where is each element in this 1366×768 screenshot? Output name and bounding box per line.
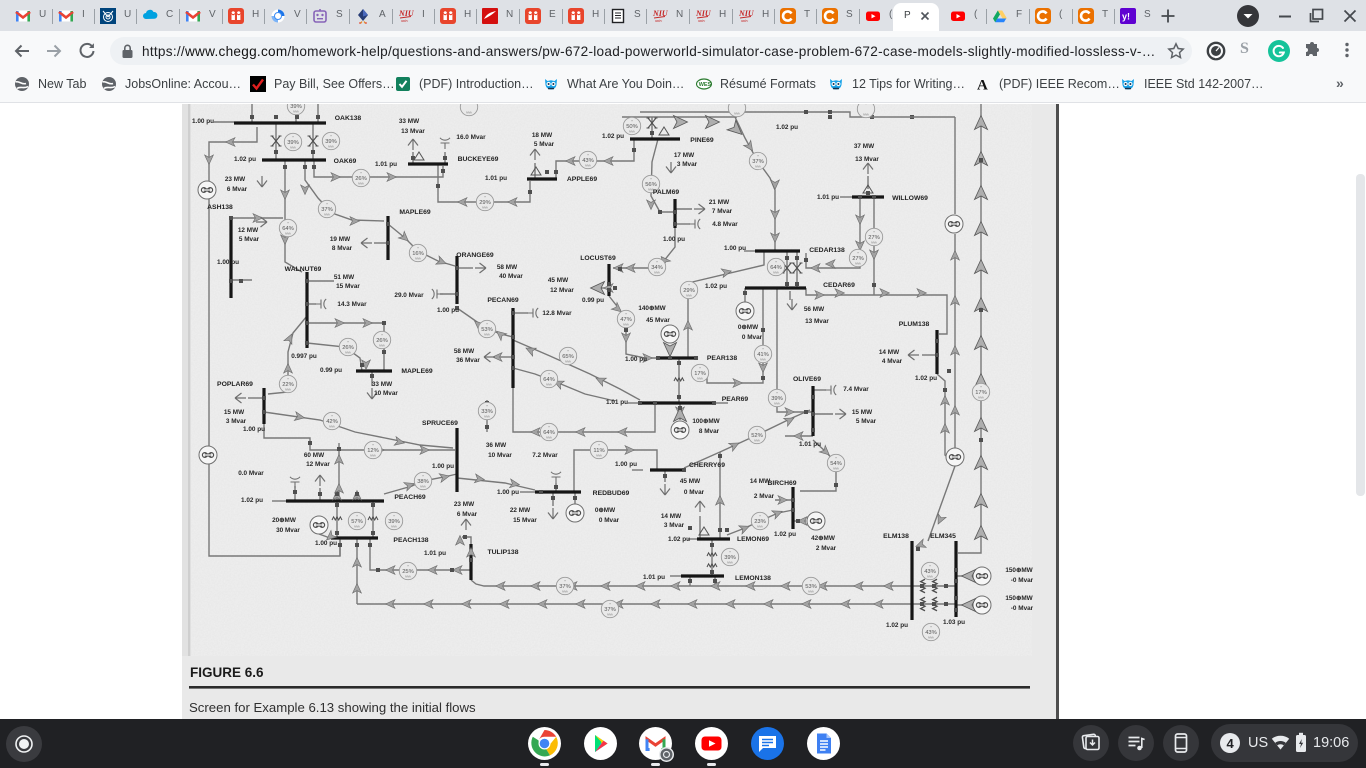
svg-text:MVA: MVA	[808, 589, 814, 593]
svg-text:MVA: MVA	[855, 261, 861, 265]
svg-text:37%: 37%	[604, 607, 616, 613]
svg-text:26%: 26%	[342, 345, 354, 351]
svg-text:univ: univ	[698, 18, 705, 23]
svg-text:39%: 39%	[290, 104, 302, 110]
svg-text:1.02 pu: 1.02 pu	[705, 283, 727, 290]
svg-text:1.02 pu: 1.02 pu	[774, 531, 796, 538]
svg-text:1.00 pu: 1.00 pu	[497, 489, 519, 496]
svg-text:13 Mvar: 13 Mvar	[805, 318, 829, 325]
svg-text:MVA: MVA	[285, 387, 291, 391]
svg-text:MVA: MVA	[928, 635, 934, 639]
svg-text:37%: 37%	[559, 584, 571, 590]
svg-text:1.01 pu: 1.01 pu	[485, 175, 507, 182]
svg-text:1.02 pu: 1.02 pu	[241, 497, 263, 504]
svg-text:MAPLE69: MAPLE69	[401, 368, 433, 375]
svg-text:MVA: MVA	[654, 270, 660, 274]
svg-text:1.02 pu: 1.02 pu	[886, 622, 908, 629]
svg-text:29.0 Mvar: 29.0 Mvar	[394, 292, 424, 299]
svg-text:56 MW: 56 MW	[804, 306, 825, 313]
svg-text:MVA: MVA	[328, 144, 334, 148]
svg-text:23%: 23%	[754, 519, 766, 525]
svg-text:0.0 Mvar: 0.0 Mvar	[238, 470, 264, 477]
svg-text:1.02 pu: 1.02 pu	[234, 156, 256, 163]
svg-text:26%: 26%	[355, 176, 367, 182]
svg-text:PEAR138: PEAR138	[707, 355, 737, 362]
svg-text:PEAR69: PEAR69	[722, 396, 749, 403]
svg-text:y!: y!	[1122, 12, 1130, 22]
svg-text:MVA: MVA	[978, 395, 984, 399]
svg-text:NIU: NIU	[652, 9, 668, 18]
svg-text:2 Mvar: 2 Mvar	[816, 545, 837, 552]
svg-text:15 MW: 15 MW	[224, 409, 245, 416]
svg-text:39%: 39%	[388, 519, 400, 525]
svg-text:45 MW: 45 MW	[680, 478, 701, 485]
svg-text:MVA: MVA	[774, 401, 780, 405]
svg-text:ORANGE69: ORANGE69	[456, 252, 494, 259]
svg-text:8 Mvar: 8 Mvar	[699, 428, 720, 435]
svg-text:33 MW: 33 MW	[372, 381, 393, 388]
svg-text:10 Mvar: 10 Mvar	[488, 452, 512, 459]
svg-text:0 Mvar: 0 Mvar	[599, 517, 620, 524]
svg-text:1.03 pu: 1.03 pu	[943, 619, 965, 626]
svg-text:MAPLE69: MAPLE69	[399, 209, 431, 216]
svg-text:NIU: NIU	[738, 9, 754, 18]
svg-text:MVA: MVA	[290, 145, 296, 149]
svg-text:univ: univ	[741, 18, 748, 23]
svg-text:6 Mvar: 6 Mvar	[457, 511, 478, 518]
svg-text:15 MW: 15 MW	[852, 409, 873, 416]
svg-text:5 Mvar: 5 Mvar	[239, 236, 260, 243]
svg-text:21 MW: 21 MW	[709, 199, 730, 206]
svg-text:64%: 64%	[282, 226, 294, 232]
svg-text:50%: 50%	[626, 124, 638, 130]
svg-text:16.0 Mvar: 16.0 Mvar	[456, 134, 486, 141]
svg-text:4 Mvar: 4 Mvar	[882, 358, 903, 365]
svg-text:MVA: MVA	[546, 382, 552, 386]
svg-text:WILLOW69: WILLOW69	[892, 195, 928, 202]
svg-text:150⊕MW: 150⊕MW	[1005, 567, 1033, 574]
svg-text:univ: univ	[401, 18, 408, 23]
svg-text:65%: 65%	[562, 354, 574, 360]
svg-text:27%: 27%	[852, 256, 864, 262]
svg-text:0.99 pu: 0.99 pu	[582, 297, 604, 304]
svg-text:53%: 53%	[481, 327, 493, 333]
svg-text:14 MW: 14 MW	[879, 349, 900, 356]
svg-text:MVA: MVA	[629, 129, 635, 133]
svg-text:MVA: MVA	[757, 524, 763, 528]
svg-text:0.99 pu: 0.99 pu	[320, 367, 342, 374]
svg-text:12 MW: 12 MW	[238, 227, 259, 234]
svg-text:41%: 41%	[757, 352, 769, 358]
svg-text:14 MW: 14 MW	[750, 478, 771, 485]
svg-text:NIU: NIU	[398, 9, 414, 18]
svg-text:MVA: MVA	[871, 240, 877, 244]
svg-text:0 Mvar: 0 Mvar	[684, 489, 705, 496]
svg-text:58 MW: 58 MW	[497, 264, 518, 271]
svg-text:0.997 pu: 0.997 pu	[291, 353, 317, 360]
svg-text:3 Mvar: 3 Mvar	[664, 522, 685, 529]
svg-text:53%: 53%	[805, 584, 817, 590]
svg-text:23 MW: 23 MW	[225, 176, 246, 183]
svg-text:MVA: MVA	[484, 414, 490, 418]
svg-text:14.3 Mvar: 14.3 Mvar	[337, 301, 367, 308]
svg-text:29%: 29%	[479, 200, 491, 206]
svg-text:22%: 22%	[282, 382, 294, 388]
svg-text:1.02 pu: 1.02 pu	[776, 124, 798, 131]
svg-text:MVA: MVA	[405, 574, 411, 578]
svg-text:1.00 pu: 1.00 pu	[432, 463, 454, 470]
svg-text:Screen for Example 6.13 showin: Screen for Example 6.13 showing the init…	[189, 700, 476, 715]
svg-text:MVA: MVA	[760, 357, 766, 361]
svg-text:SPRUCE69: SPRUCE69	[422, 420, 458, 427]
svg-text:MVA: MVA	[466, 110, 472, 114]
svg-text:51 MW: 51 MW	[334, 274, 355, 281]
svg-text:1.01 pu: 1.01 pu	[817, 194, 839, 201]
svg-text:1.00 pu: 1.00 pu	[315, 540, 337, 547]
svg-text:PEACH138: PEACH138	[393, 537, 428, 544]
svg-text:33 MW: 33 MW	[399, 118, 420, 125]
svg-text:100⊕MW: 100⊕MW	[692, 418, 720, 425]
svg-text:PALM69: PALM69	[653, 189, 680, 196]
svg-text:39%: 39%	[771, 396, 783, 402]
svg-text:4.8 Mvar: 4.8 Mvar	[712, 221, 738, 228]
svg-text:43%: 43%	[925, 630, 937, 636]
svg-text:7 Mvar: 7 Mvar	[712, 208, 733, 215]
svg-text:PLUM138: PLUM138	[899, 321, 930, 328]
svg-text:0⊕MW: 0⊕MW	[595, 507, 616, 514]
svg-text:OLIVE69: OLIVE69	[793, 376, 821, 383]
svg-text:MVA: MVA	[585, 163, 591, 167]
svg-text:1.01 pu: 1.01 pu	[424, 550, 446, 557]
svg-text:33%: 33%	[481, 409, 493, 415]
svg-text:64%: 64%	[770, 265, 782, 271]
svg-text:42⊕MW: 42⊕MW	[811, 535, 836, 542]
svg-text:140⊕MW: 140⊕MW	[638, 305, 666, 312]
svg-text:1.00 pu: 1.00 pu	[217, 259, 239, 266]
svg-text:1.00 pu: 1.00 pu	[192, 118, 214, 125]
svg-text:MVA: MVA	[358, 181, 364, 185]
svg-text:38%: 38%	[417, 479, 429, 485]
svg-text:7.2 Mvar: 7.2 Mvar	[532, 452, 558, 459]
svg-text:MVA: MVA	[345, 350, 351, 354]
svg-text:36 MW: 36 MW	[486, 442, 507, 449]
svg-text:29%: 29%	[683, 288, 695, 294]
svg-text:17 MW: 17 MW	[674, 152, 695, 159]
svg-text:MVA: MVA	[833, 466, 839, 470]
svg-text:1.01 pu: 1.01 pu	[799, 441, 821, 448]
svg-text:13 Mvar: 13 Mvar	[855, 156, 879, 163]
svg-text:60 MW: 60 MW	[304, 452, 325, 459]
svg-text:LEMON138: LEMON138	[735, 575, 771, 582]
svg-text:5 Mvar: 5 Mvar	[856, 418, 877, 425]
svg-text:57%: 57%	[351, 519, 363, 525]
svg-text:47%: 47%	[620, 317, 632, 323]
svg-text:0⊕MW: 0⊕MW	[738, 324, 759, 331]
svg-text:1.02 pu: 1.02 pu	[602, 133, 624, 140]
svg-text:45 MW: 45 MW	[548, 277, 569, 284]
svg-text:37%: 37%	[321, 207, 333, 213]
svg-text:56%: 56%	[645, 182, 657, 188]
svg-text:MVA: MVA	[415, 256, 421, 260]
svg-text:MVA: MVA	[420, 484, 426, 488]
svg-text:MVA: MVA	[354, 524, 360, 528]
svg-text:PECAN69: PECAN69	[487, 297, 519, 304]
svg-text:LOCUST69: LOCUST69	[580, 255, 616, 262]
svg-text:NIU: NIU	[695, 9, 711, 18]
svg-text:26%: 26%	[376, 338, 388, 344]
svg-text:BIRCH69: BIRCH69	[767, 480, 796, 487]
svg-text:1.02 pu: 1.02 pu	[915, 375, 937, 382]
svg-text:27%: 27%	[868, 235, 880, 241]
svg-text:34%: 34%	[651, 265, 663, 271]
svg-text:37 MW: 37 MW	[854, 143, 875, 150]
svg-text:52%: 52%	[751, 433, 763, 439]
svg-text:22 MW: 22 MW	[510, 507, 531, 514]
svg-text:MVA: MVA	[773, 270, 779, 274]
svg-text:6 Mvar: 6 Mvar	[227, 186, 248, 193]
svg-text:MVA: MVA	[686, 293, 692, 297]
svg-text:REDBUD69: REDBUD69	[593, 490, 630, 497]
svg-text:8 Mvar: 8 Mvar	[332, 245, 353, 252]
svg-text:1.00 pu: 1.00 pu	[615, 461, 637, 468]
svg-text:19 MW: 19 MW	[330, 236, 351, 243]
svg-text:MVA: MVA	[697, 376, 703, 380]
svg-text:MVA: MVA	[623, 322, 629, 326]
svg-text:1.00 pu: 1.00 pu	[724, 245, 746, 252]
svg-text:39%: 39%	[724, 555, 736, 561]
svg-text:WALNUT69: WALNUT69	[285, 266, 322, 273]
svg-text:OAK69: OAK69	[334, 158, 357, 165]
svg-text:1.02 pu: 1.02 pu	[668, 536, 690, 543]
svg-text:1.01 pu: 1.01 pu	[643, 574, 665, 581]
svg-text:MVA: MVA	[391, 524, 397, 528]
svg-text:3 Mvar: 3 Mvar	[677, 161, 698, 168]
svg-text:17%: 17%	[694, 371, 706, 377]
svg-text:16%: 16%	[412, 251, 424, 257]
svg-text:MVA: MVA	[484, 332, 490, 336]
svg-text:1.01 pu: 1.01 pu	[375, 161, 397, 168]
svg-text:POPLAR69: POPLAR69	[217, 381, 253, 388]
svg-text:43%: 43%	[924, 569, 936, 575]
svg-text:20⊕MW: 20⊕MW	[272, 517, 297, 524]
svg-text:1.01 pu: 1.01 pu	[606, 399, 628, 406]
svg-text:25%: 25%	[402, 569, 414, 575]
svg-text:CEDAR69: CEDAR69	[823, 282, 855, 289]
svg-text:-0 Mvar: -0 Mvar	[1011, 605, 1034, 612]
svg-text:0 Mvar: 0 Mvar	[742, 334, 763, 341]
svg-text:7.4 Mvar: 7.4 Mvar	[843, 386, 869, 393]
svg-text:12 Mvar: 12 Mvar	[550, 287, 574, 294]
svg-text:13 Mvar: 13 Mvar	[401, 128, 425, 135]
svg-text:15 Mvar: 15 Mvar	[336, 283, 360, 290]
svg-text:MVA: MVA	[562, 589, 568, 593]
svg-text:MVA: MVA	[596, 453, 602, 457]
svg-text:36 Mvar: 36 Mvar	[456, 357, 480, 364]
svg-text:MVA: MVA	[927, 574, 933, 578]
svg-text:APPLE69: APPLE69	[567, 176, 597, 183]
svg-text:5 Mvar: 5 Mvar	[534, 141, 555, 148]
svg-text:MVA: MVA	[293, 109, 299, 113]
svg-text:MVA: MVA	[754, 438, 760, 442]
svg-text:PINE69: PINE69	[690, 137, 714, 144]
svg-text:MVA: MVA	[863, 112, 869, 116]
svg-text:BUCKEYE69: BUCKEYE69	[458, 156, 499, 163]
svg-text:univ: univ	[655, 18, 662, 23]
svg-text:MVA: MVA	[324, 212, 330, 216]
svg-text:1.00 pu: 1.00 pu	[437, 307, 459, 314]
svg-text:39%: 39%	[287, 140, 299, 146]
svg-text:10 Mvar: 10 Mvar	[374, 390, 398, 397]
svg-text:2 Mvar: 2 Mvar	[754, 493, 775, 500]
svg-text:ELM345: ELM345	[930, 533, 956, 540]
svg-text:-0 Mvar: -0 Mvar	[1011, 577, 1034, 584]
svg-text:MVA: MVA	[285, 231, 291, 235]
svg-text:FIGURE 6.6: FIGURE 6.6	[190, 665, 264, 680]
svg-text:37%: 37%	[752, 159, 764, 165]
svg-text:LEMON69: LEMON69	[737, 536, 769, 543]
svg-text:12 Mvar: 12 Mvar	[306, 461, 330, 468]
svg-text:150⊕MW: 150⊕MW	[1005, 595, 1033, 602]
svg-text:MVA: MVA	[482, 205, 488, 209]
svg-text:43%: 43%	[582, 158, 594, 164]
svg-text:CEDAR138: CEDAR138	[809, 247, 845, 254]
svg-text:40 Mvar: 40 Mvar	[499, 273, 523, 280]
svg-text:42%: 42%	[326, 419, 338, 425]
svg-text:12%: 12%	[367, 448, 379, 454]
svg-text:1.00 pu: 1.00 pu	[663, 236, 685, 243]
svg-text:A: A	[977, 78, 988, 93]
svg-text:MVA: MVA	[755, 164, 761, 168]
svg-text:30 Mvar: 30 Mvar	[276, 527, 300, 534]
svg-text:MVA: MVA	[370, 453, 376, 457]
svg-text:ASH138: ASH138	[207, 204, 233, 211]
svg-text:MVA: MVA	[727, 560, 733, 564]
svg-text:23 MW: 23 MW	[454, 501, 475, 508]
svg-text:18 MW: 18 MW	[532, 132, 553, 139]
svg-text:3 Mvar: 3 Mvar	[226, 418, 247, 425]
svg-text:39%: 39%	[325, 139, 337, 145]
svg-text:MVA: MVA	[607, 612, 613, 616]
svg-text:CHERRY69: CHERRY69	[689, 462, 725, 469]
svg-text:12.8 Mvar: 12.8 Mvar	[542, 310, 572, 317]
svg-text:WES: WES	[699, 82, 712, 88]
svg-text:54%: 54%	[830, 461, 842, 467]
svg-text:1.00 pu: 1.00 pu	[625, 356, 647, 363]
svg-text:MVA: MVA	[379, 343, 385, 347]
svg-text:17%: 17%	[975, 390, 987, 396]
svg-text:MVA: MVA	[329, 424, 335, 428]
svg-text:MVA: MVA	[565, 359, 571, 363]
svg-text:OAK138: OAK138	[335, 115, 362, 122]
svg-text:1.00 pu: 1.00 pu	[243, 426, 265, 433]
svg-text:45 Mvar: 45 Mvar	[646, 317, 670, 324]
svg-text:ELM138: ELM138	[883, 533, 909, 540]
svg-text:64%: 64%	[543, 430, 555, 436]
svg-text:58 MW: 58 MW	[454, 348, 475, 355]
svg-text:11%: 11%	[593, 448, 604, 454]
svg-text:15 Mvar: 15 Mvar	[513, 517, 537, 524]
svg-text:14 MW: 14 MW	[661, 513, 682, 520]
svg-text:MVA: MVA	[734, 111, 740, 115]
svg-text:TULIP138: TULIP138	[488, 549, 519, 556]
svg-text:64%: 64%	[543, 377, 555, 383]
svg-text:MVA: MVA	[546, 435, 552, 439]
svg-text:PEACH69: PEACH69	[394, 494, 426, 501]
